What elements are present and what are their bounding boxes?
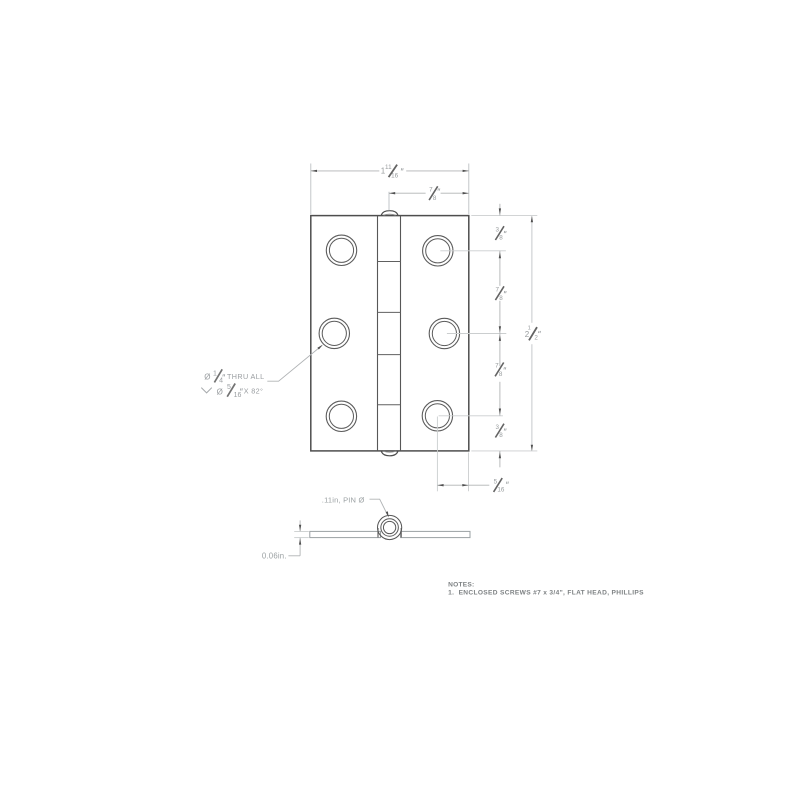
svg-text:3: 3: [495, 424, 499, 431]
svg-text:.11in, PIN Ø: .11in, PIN Ø: [322, 495, 365, 504]
svg-text:8: 8: [499, 295, 503, 302]
svg-text:Ø: Ø: [204, 372, 210, 381]
svg-text:8: 8: [499, 432, 503, 439]
svg-text:X 82°: X 82°: [244, 386, 263, 395]
svg-text:8: 8: [499, 371, 503, 378]
svg-text:8: 8: [499, 235, 503, 242]
svg-text:16: 16: [234, 392, 242, 399]
svg-text:5: 5: [494, 478, 498, 485]
svg-text:16: 16: [497, 487, 505, 494]
svg-text:11: 11: [385, 164, 392, 171]
svg-text:1: 1: [528, 326, 531, 332]
svg-text:1: 1: [213, 370, 217, 377]
svg-text:4: 4: [219, 377, 223, 384]
svg-text:7: 7: [495, 363, 499, 370]
svg-text:16: 16: [391, 172, 399, 179]
svg-text:Ø: Ø: [217, 388, 223, 397]
svg-text:NOTES:: NOTES:: [448, 581, 474, 588]
svg-text:7: 7: [495, 287, 499, 294]
svg-text:THRU ALL: THRU ALL: [227, 372, 265, 381]
svg-text:2: 2: [534, 335, 538, 342]
svg-text:8: 8: [433, 195, 437, 202]
svg-text:0.06in.: 0.06in.: [262, 551, 287, 560]
svg-text:1. ENCLOSED SCREWS #7 x 3/4",: 1. ENCLOSED SCREWS #7 x 3/4", FLAT HEAD,…: [448, 590, 644, 597]
svg-text:3: 3: [495, 226, 499, 233]
svg-text:7: 7: [429, 187, 433, 194]
